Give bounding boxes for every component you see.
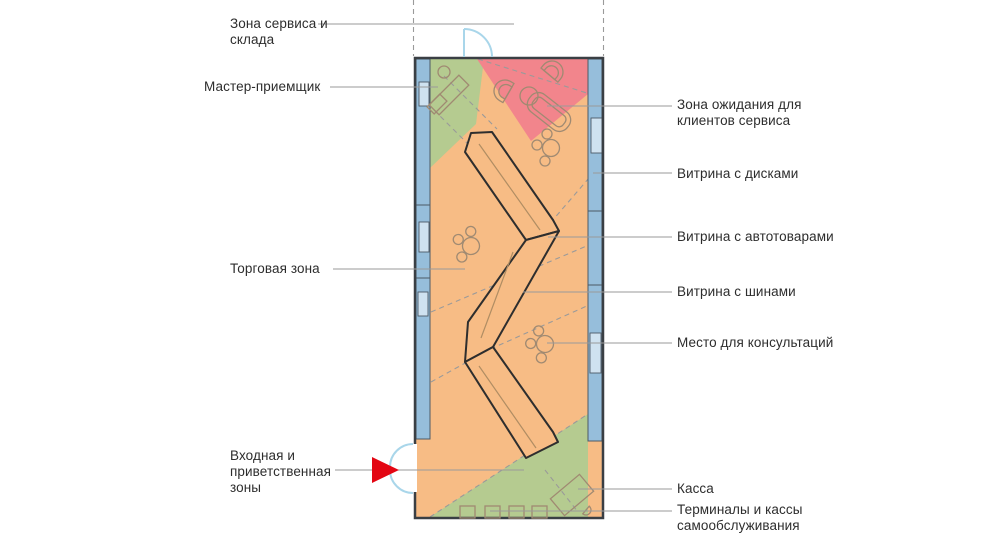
right-showcase-strip	[588, 59, 602, 441]
floor-plan-svg	[0, 0, 1000, 549]
label-waiting-zone: Зона ожидания для клиентов сервиса	[677, 97, 837, 129]
service-door-icon	[464, 29, 492, 57]
label-showcase-tires: Витрина с шинами	[677, 284, 796, 300]
entrance-wall-opening	[409, 444, 417, 492]
label-service-storage-zone: Зона сервиса и склада	[230, 16, 350, 48]
label-consultation-spot: Место для консультаций	[677, 335, 833, 351]
label-trading-zone: Торговая зона	[230, 261, 320, 277]
label-cash-desk: Касса	[677, 481, 714, 497]
label-showcase-auto-goods: Витрина с автотоварами	[677, 229, 834, 245]
label-showcase-discs: Витрина с дисками	[677, 166, 798, 182]
floor-plan-diagram: Зона сервиса и склада Мастер-приемщик То…	[0, 0, 1000, 549]
label-master-receiver: Мастер-приемщик	[204, 79, 320, 95]
label-self-service-terminals: Терминалы и кассы самообслуживания	[677, 502, 847, 534]
entrance-arrow-icon	[372, 457, 399, 483]
label-entrance-welcome-zones: Входная и приветственная зоны	[230, 448, 350, 496]
